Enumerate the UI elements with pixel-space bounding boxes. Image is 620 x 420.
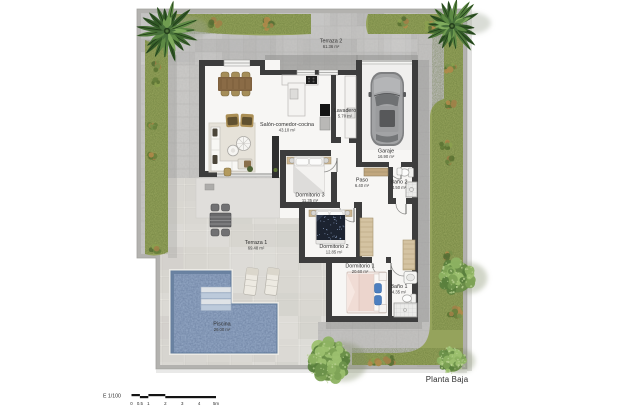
svg-text:43.10 m²: 43.10 m² [279,128,296,133]
svg-text:0.5: 0.5 [137,401,144,406]
svg-text:4.35 m²: 4.35 m² [392,290,407,295]
svg-text:3: 3 [181,401,184,406]
svg-text:4: 4 [198,401,201,406]
svg-text:1: 1 [147,401,150,406]
svg-text:4.50 m²: 4.50 m² [392,185,407,190]
svg-text:2: 2 [164,401,167,406]
svg-text:26.00 m²: 26.00 m² [214,327,231,332]
svg-text:69.48 m²: 69.48 m² [248,246,265,251]
svg-text:20.60 m²: 20.60 m² [352,269,369,274]
svg-text:E 1/100: E 1/100 [103,394,121,400]
svg-text:16.90 m²: 16.90 m² [378,154,395,159]
svg-text:11.35 m²: 11.35 m² [302,198,319,203]
svg-text:Planta Baja: Planta Baja [426,375,469,384]
svg-text:5.70 m²: 5.70 m² [338,114,353,119]
svg-text:6.40 m²: 6.40 m² [355,183,370,188]
svg-text:5m: 5m [213,401,219,406]
svg-text:12.85 m²: 12.85 m² [326,250,343,255]
svg-text:61.36 m²: 61.36 m² [323,44,340,49]
svg-text:0: 0 [130,401,133,406]
